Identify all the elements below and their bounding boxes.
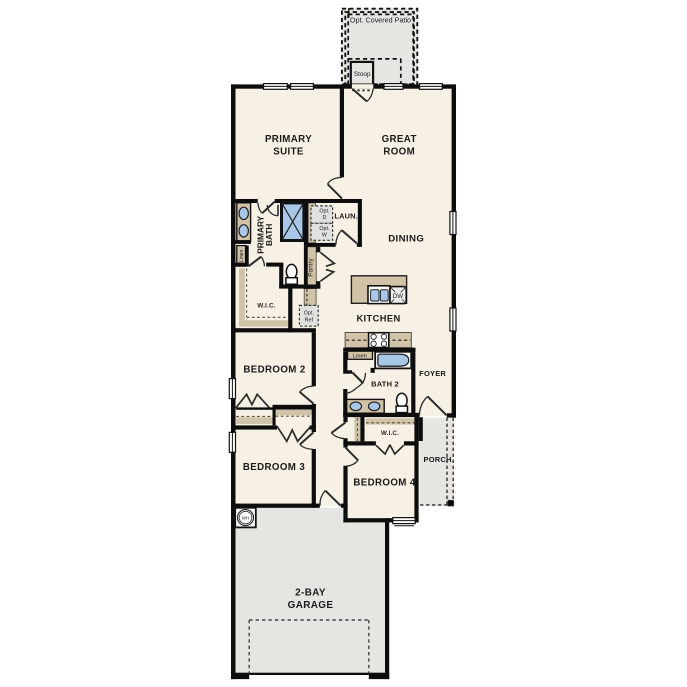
svg-text:DINING: DINING	[388, 233, 424, 244]
svg-text:DW: DW	[393, 293, 403, 300]
svg-text:W.I.C.: W.I.C.	[257, 302, 276, 309]
svg-text:Opt.: Opt.	[319, 226, 329, 232]
svg-text:W.I.C.: W.I.C.	[381, 430, 399, 437]
svg-text:Linen: Linen	[239, 250, 245, 262]
svg-text:ROOM: ROOM	[383, 146, 415, 157]
svg-text:Linen: Linen	[353, 353, 367, 359]
svg-text:PORCH: PORCH	[424, 455, 452, 464]
svg-text:Opt.: Opt.	[304, 310, 314, 316]
svg-text:2-BAY: 2-BAY	[295, 587, 326, 598]
svg-text:Stoop: Stoop	[354, 71, 371, 78]
svg-text:GREAT: GREAT	[382, 134, 417, 145]
svg-text:Pantry: Pantry	[308, 257, 315, 276]
svg-text:BATH 2: BATH 2	[371, 380, 399, 389]
svg-text:Ref: Ref	[305, 317, 314, 323]
svg-text:FOYER: FOYER	[419, 369, 446, 378]
svg-text:BEDROOM 2: BEDROOM 2	[243, 364, 305, 375]
svg-text:BATH: BATH	[264, 224, 274, 246]
svg-text:Opt. Covered Patio: Opt. Covered Patio	[350, 15, 411, 24]
svg-text:WH: WH	[242, 515, 249, 520]
svg-text:GARAGE: GARAGE	[288, 600, 334, 611]
svg-text:SUITE: SUITE	[273, 146, 304, 157]
svg-text:KITCHEN: KITCHEN	[356, 314, 400, 324]
svg-text:BEDROOM 3: BEDROOM 3	[243, 462, 305, 473]
svg-text:D: D	[322, 215, 326, 221]
svg-text:LAUN.: LAUN.	[334, 211, 358, 220]
svg-text:W: W	[322, 233, 327, 239]
svg-text:BEDROOM 4: BEDROOM 4	[353, 477, 415, 488]
svg-text:PRIMARY: PRIMARY	[265, 134, 312, 145]
svg-text:Opt.: Opt.	[319, 209, 329, 215]
